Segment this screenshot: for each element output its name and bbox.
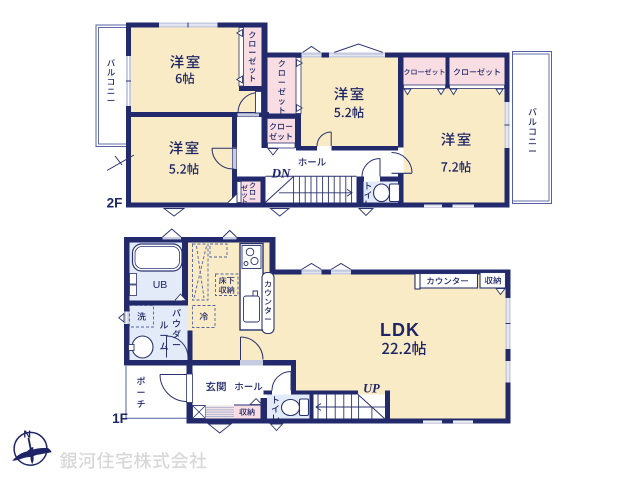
svg-text:1F: 1F (112, 411, 128, 426)
svg-text:DN: DN (271, 166, 291, 181)
svg-text:N: N (23, 428, 31, 440)
svg-text:UB: UB (153, 279, 168, 291)
svg-text:LDK: LDK (380, 320, 420, 340)
svg-text:UP: UP (363, 382, 380, 396)
svg-text:2F: 2F (107, 196, 123, 211)
